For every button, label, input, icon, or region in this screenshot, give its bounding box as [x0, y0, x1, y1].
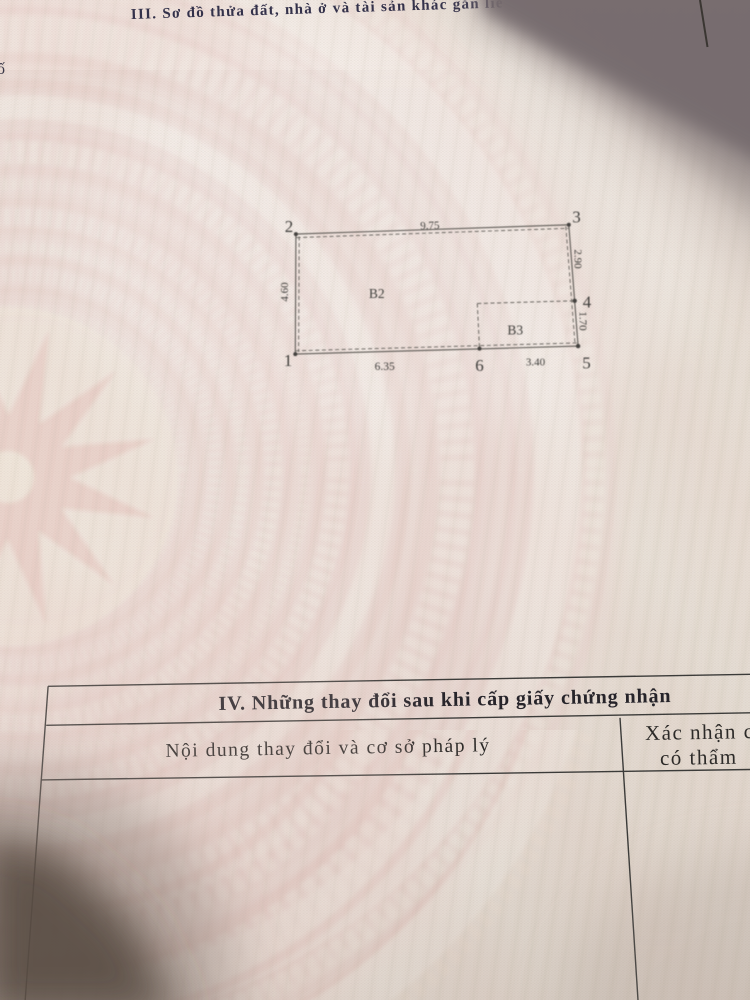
svg-text:B2: B2: [369, 286, 385, 301]
svg-text:1.70: 1.70: [577, 311, 589, 331]
svg-text:2: 2: [285, 217, 294, 236]
svg-text:B3: B3: [507, 323, 523, 338]
svg-text:4: 4: [583, 293, 592, 312]
svg-text:có thẩm: có thẩm: [660, 745, 738, 770]
svg-text:1: 1: [284, 351, 293, 370]
svg-text:6.35: 6.35: [375, 361, 395, 373]
svg-text:Xác nhận c: Xác nhận c: [645, 719, 750, 745]
svg-text:4.60: 4.60: [279, 282, 291, 302]
svg-text:3: 3: [572, 208, 581, 227]
svg-text:2.90: 2.90: [572, 249, 584, 269]
svg-text:9.75: 9.75: [420, 220, 440, 233]
svg-text:ố: ố: [0, 61, 5, 78]
svg-text:3.40: 3.40: [526, 357, 546, 369]
svg-text:6: 6: [475, 356, 484, 375]
svg-text:5: 5: [582, 354, 591, 373]
